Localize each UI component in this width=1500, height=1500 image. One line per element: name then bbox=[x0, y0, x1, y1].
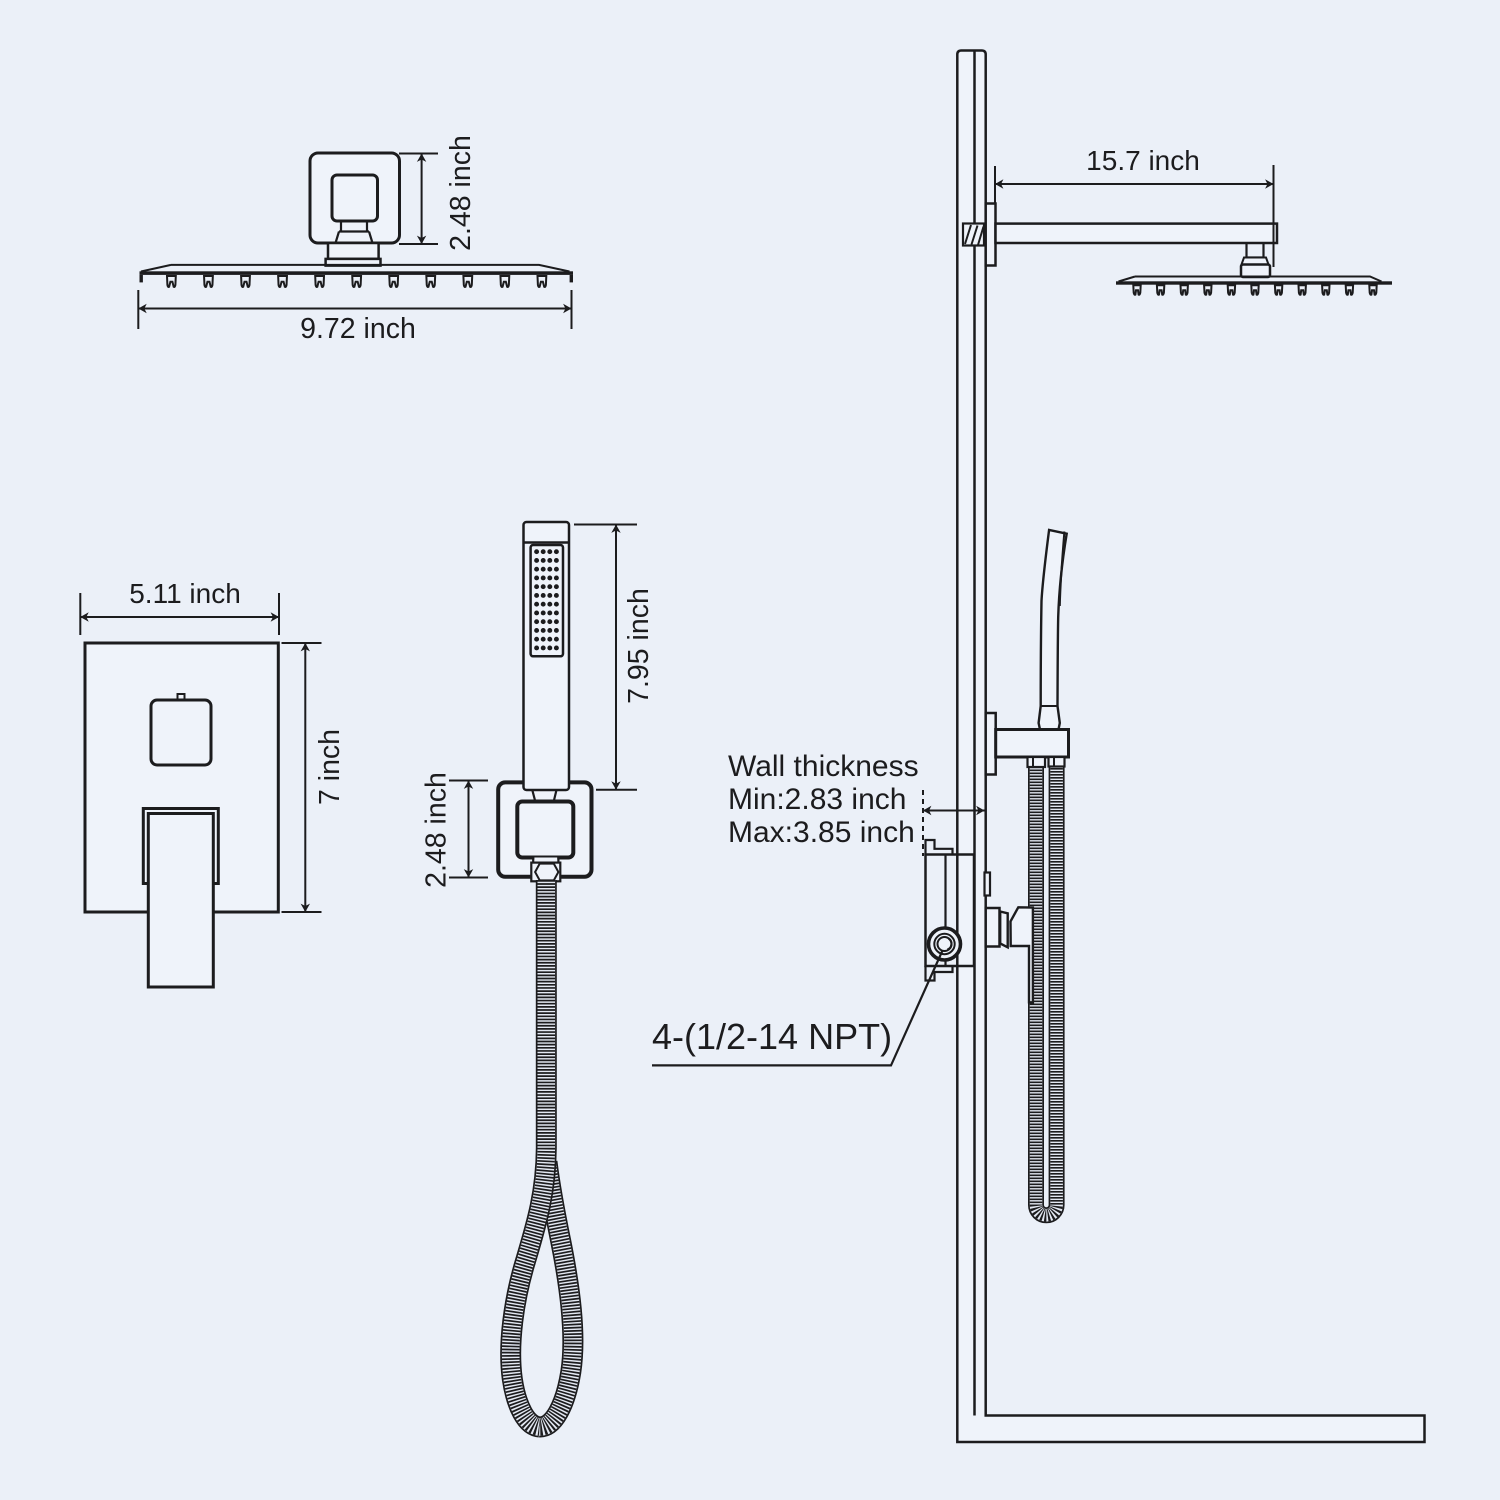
svg-text:2.48 inch: 2.48 inch bbox=[421, 772, 453, 888]
svg-text:Wall thickness: Wall thickness bbox=[728, 750, 919, 783]
svg-text:7 inch: 7 inch bbox=[314, 729, 346, 805]
svg-text:7.95 inch: 7.95 inch bbox=[623, 588, 655, 704]
svg-text:5.11 inch: 5.11 inch bbox=[129, 578, 241, 609]
svg-text:9.72 inch: 9.72 inch bbox=[300, 313, 416, 345]
svg-text:15.7 inch: 15.7 inch bbox=[1086, 145, 1200, 176]
svg-text:Min:2.83 inch: Min:2.83 inch bbox=[728, 783, 906, 816]
svg-text:Max:3.85 inch: Max:3.85 inch bbox=[728, 816, 915, 849]
svg-text:2.48 inch: 2.48 inch bbox=[445, 135, 477, 251]
svg-text:4-(1/2-14 NPT): 4-(1/2-14 NPT) bbox=[652, 1016, 892, 1057]
